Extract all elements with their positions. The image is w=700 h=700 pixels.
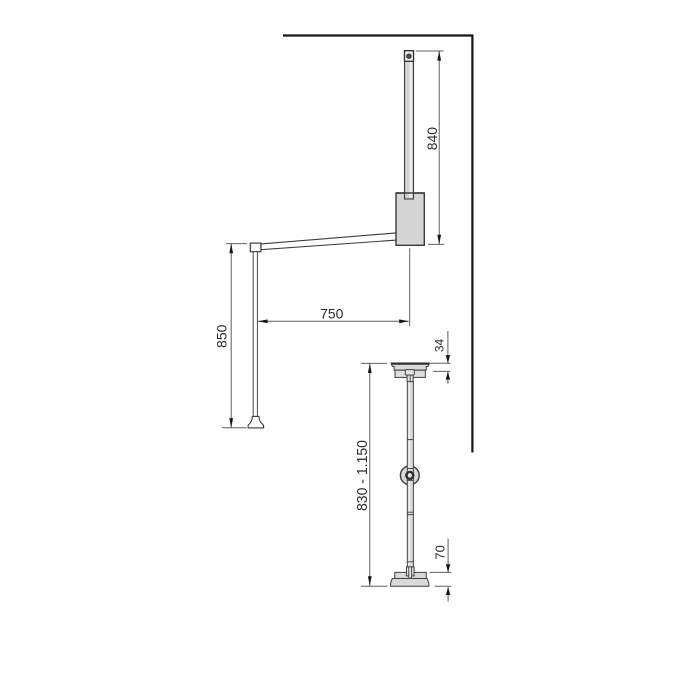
- svg-text:70: 70: [432, 545, 447, 559]
- svg-text:830 - 1.150: 830 - 1.150: [354, 440, 371, 511]
- svg-text:850: 850: [214, 324, 230, 348]
- svg-text:840: 840: [424, 127, 440, 151]
- svg-text:750: 750: [320, 305, 344, 321]
- svg-text:34: 34: [433, 339, 447, 353]
